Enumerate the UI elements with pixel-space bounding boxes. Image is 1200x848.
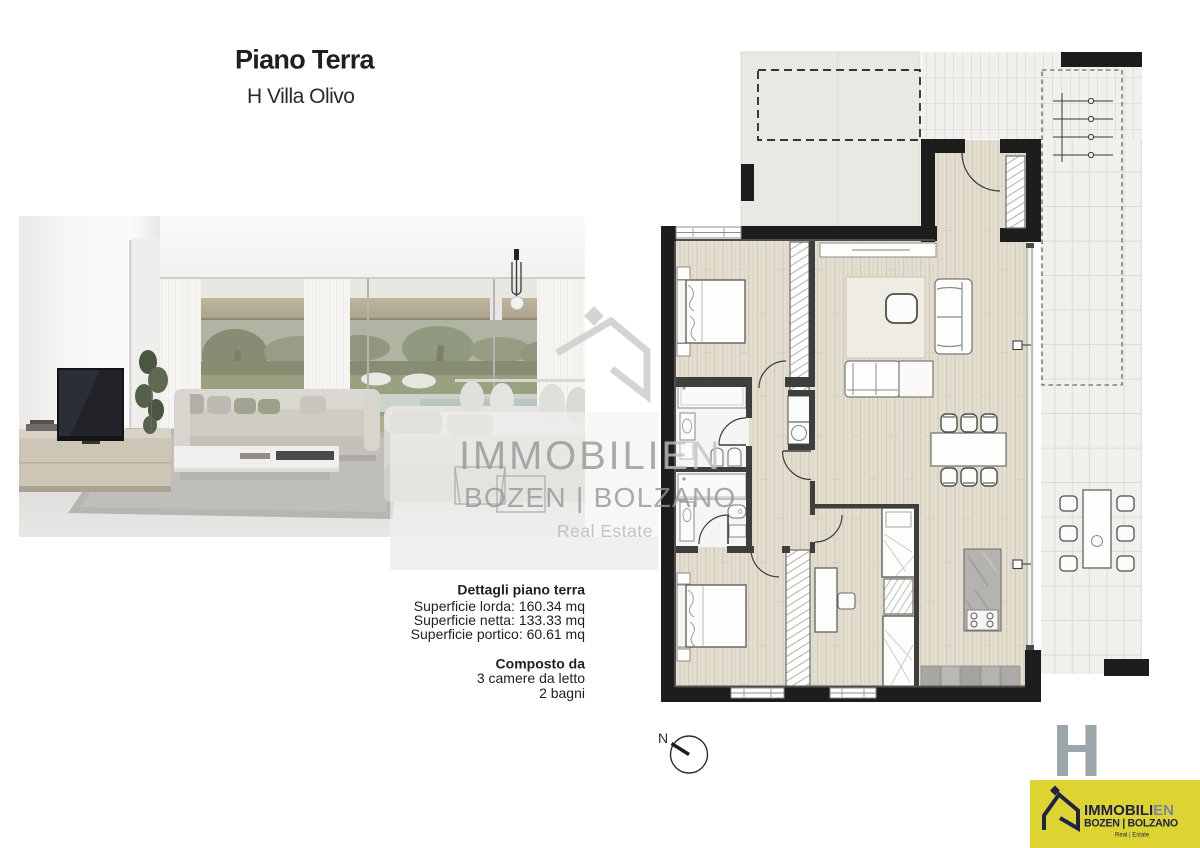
svg-text:Superficie portico: 60.61 mq: Superficie portico: 60.61 mq <box>411 626 585 642</box>
svg-text:Piano Terra: Piano Terra <box>235 45 376 75</box>
svg-text:Real Estate: Real Estate <box>557 521 653 541</box>
svg-text:IMMOBILIEN: IMMOBILIEN <box>1084 802 1174 819</box>
svg-text:Dettagli piano terra: Dettagli piano terra <box>457 582 585 598</box>
svg-text:BOZEN | BOLZANO: BOZEN | BOLZANO <box>1084 818 1178 830</box>
svg-text:Real | Estate: Real | Estate <box>1115 833 1150 839</box>
svg-text:N: N <box>658 730 668 746</box>
svg-text:H Villa Olivo: H Villa Olivo <box>247 85 354 108</box>
svg-text:BOZEN | BOLZANO: BOZEN | BOLZANO <box>464 482 737 513</box>
svg-text:3 camere da letto: 3 camere da letto <box>477 670 585 686</box>
svg-text:2 bagni: 2 bagni <box>539 685 585 701</box>
svg-text:IMMOBILIEN: IMMOBILIEN <box>459 434 723 478</box>
